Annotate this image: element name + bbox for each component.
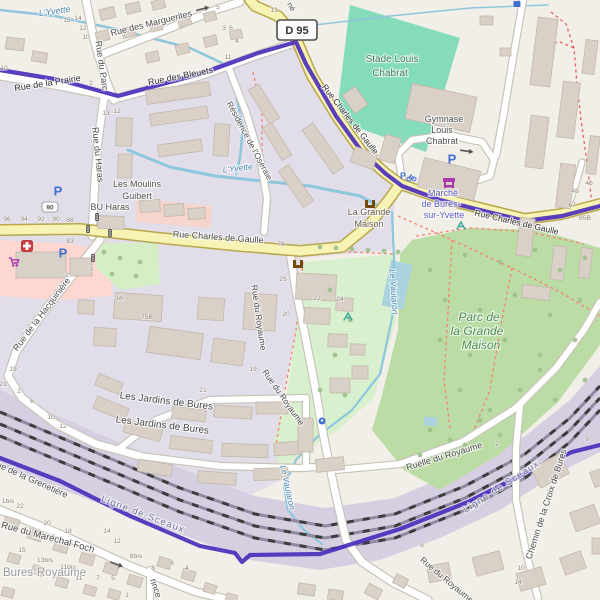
building [164, 203, 185, 216]
tree-symbol [468, 353, 473, 358]
parking-icon[interactable]: P [59, 246, 68, 261]
house-number: 3 [89, 266, 93, 273]
house-number: 3 [222, 25, 226, 32]
tree-symbol [533, 248, 538, 253]
building [352, 366, 368, 379]
building [327, 589, 343, 600]
traffic-signal-icon[interactable] [108, 229, 112, 237]
supermarket-icon [16, 264, 19, 267]
house-number: 22 [16, 503, 24, 510]
house-number: 12 [59, 423, 67, 430]
tree-symbol [488, 408, 493, 413]
tree-symbol [102, 250, 107, 255]
map-label: Guibert [122, 191, 152, 201]
osm-map-canvas[interactable]: PPPPD 9590L'YvetteRue des MargueritesRue… [0, 0, 600, 600]
building [592, 538, 600, 554]
house-number: 96 [3, 216, 11, 223]
tree-symbol [498, 260, 503, 265]
building [213, 124, 230, 157]
house-number: 14 [103, 528, 111, 535]
tree-symbol [518, 388, 523, 393]
tree-symbol [538, 353, 543, 358]
house-number: 15 [18, 547, 26, 554]
building [330, 378, 350, 393]
traffic-signal-icon [96, 216, 98, 218]
tree-symbol [428, 428, 433, 433]
road-ref-badge-label: D 95 [285, 25, 308, 37]
house-number: 75B [141, 314, 154, 321]
tree-symbol [478, 418, 483, 423]
city-gate-icon [296, 265, 300, 268]
tree-symbol [418, 453, 423, 458]
house-number: 7 [96, 575, 100, 582]
house-number: 15 [63, 17, 71, 24]
traffic-signal-icon [87, 228, 89, 230]
house-number: 13 [270, 7, 278, 14]
map-label: La Grande [348, 207, 391, 217]
tree-symbol [548, 313, 553, 318]
traffic-signal-icon[interactable] [86, 225, 90, 233]
house-number: 6 [170, 560, 174, 567]
building [297, 583, 315, 596]
traffic-signal-icon [92, 257, 94, 259]
building [304, 307, 331, 324]
house-number: 4 [185, 565, 189, 572]
building [222, 443, 268, 458]
house-number: 10 [0, 65, 8, 72]
parking-icon: P [448, 152, 457, 167]
house-number: 13 [102, 110, 110, 117]
traffic-signal-icon [92, 259, 94, 261]
house-number: 83 [66, 238, 74, 245]
house-number: 4 [235, 38, 239, 45]
house-number: 21 [199, 387, 207, 394]
house-number: 3A [115, 295, 124, 302]
house-number: 11 [224, 54, 231, 61]
traffic-signal-icon[interactable] [91, 254, 95, 262]
traffic-signal-icon[interactable] [95, 213, 99, 221]
tree-symbol [343, 393, 348, 398]
house-number: 5 [111, 575, 115, 582]
house-number: 22 [313, 295, 321, 302]
tree-symbol [458, 388, 463, 393]
house-number: 2 [17, 388, 21, 395]
city-gate-icon [293, 260, 296, 268]
map-label: la Grande [451, 324, 504, 338]
house-number: 1 [125, 592, 129, 599]
parking-icon: P [59, 246, 68, 261]
house-number: 10 [47, 414, 55, 421]
map-label: Maison [354, 219, 383, 229]
house-number: 12 [113, 108, 121, 115]
house-number: 14 [74, 15, 82, 22]
marketplace-icon [443, 178, 455, 182]
house-number: 12 [79, 25, 87, 32]
house-number: 2 [65, 272, 69, 279]
house-number: 8bis [130, 553, 143, 560]
building [328, 334, 347, 348]
building [5, 37, 24, 51]
building [315, 457, 344, 473]
house-number: 6 [229, 25, 233, 32]
house-number: 8 [420, 542, 424, 549]
building [188, 207, 206, 219]
parking-icon: P [54, 184, 63, 199]
map-label: Marché [428, 188, 458, 198]
tree-symbol [583, 378, 588, 383]
house-number: 25 [279, 276, 287, 283]
city-gate-icon [300, 260, 303, 268]
tree-symbol [498, 433, 503, 438]
traffic-signal-icon [87, 230, 89, 232]
blue-poi-icon[interactable] [514, 1, 521, 7]
tree-symbol [366, 248, 371, 253]
road-ref-badge-label: 90 [46, 204, 54, 211]
map-label: Les Moulins [113, 179, 162, 189]
house-number: 20 [282, 311, 290, 318]
tree-symbol [350, 247, 355, 252]
bicycle-parking-icon: P [400, 171, 406, 181]
house-number: 10 [517, 565, 525, 572]
house-number: 21 [0, 381, 7, 388]
house-number: 11bis [60, 564, 76, 571]
tree-symbol [110, 272, 115, 277]
building [118, 154, 133, 178]
pond [424, 417, 437, 426]
tree-symbol [318, 245, 323, 250]
house-number: 6 [30, 398, 34, 405]
house-number: 9 [585, 436, 589, 443]
house-number: 24 [336, 296, 344, 303]
map-label: de Bures- [421, 199, 460, 209]
house-number: 20 [43, 520, 51, 527]
house-number: 1bis [2, 498, 15, 505]
tree-symbol [318, 388, 323, 393]
drinking-water-icon [321, 419, 323, 421]
tree-symbol [396, 250, 401, 255]
building [198, 471, 237, 486]
clinic-icon [23, 245, 31, 248]
tree-symbol [134, 274, 139, 279]
traffic-signal-icon [92, 255, 94, 257]
tree-symbol [443, 298, 448, 303]
tree-symbol [138, 260, 143, 265]
traffic-signal-icon [109, 232, 111, 234]
map-label: sur-Yvette [424, 210, 465, 220]
building [197, 297, 224, 321]
tree-symbol [538, 368, 543, 373]
house-number: 48 [571, 188, 579, 195]
building [140, 199, 161, 212]
building [31, 51, 48, 63]
map-label: Chabrat [372, 68, 408, 79]
house-number: 12 [113, 538, 121, 545]
house-number: 94 [20, 216, 28, 223]
supermarket-icon [12, 264, 15, 267]
house-number: 78 [277, 241, 285, 248]
building [214, 405, 253, 419]
tree-symbol [382, 249, 387, 254]
house-number: 11 [75, 575, 82, 582]
house-number: 92 [37, 216, 45, 223]
map-viewport[interactable]: PPPPD 9590L'YvetteRue des MargueritesRue… [0, 0, 600, 600]
map-label: Parc de [458, 310, 500, 324]
building [480, 16, 493, 25]
map-label: Maison [462, 338, 501, 352]
building [210, 338, 245, 366]
house-number: 8 [151, 565, 155, 572]
building [500, 48, 511, 56]
tree-symbol [463, 253, 468, 258]
house-number: 46 [585, 180, 593, 187]
house-number: 19 [9, 366, 17, 373]
house-number: 18 [64, 528, 72, 535]
house-number: 5 [216, 4, 220, 11]
tree-symbol [503, 338, 508, 343]
tree-symbol [578, 298, 583, 303]
tree-symbol [328, 288, 333, 293]
map-label: Louis [431, 125, 453, 135]
tree-symbol [428, 268, 433, 273]
tree-symbol [583, 256, 588, 261]
house-number: 65B [579, 215, 592, 222]
tree-symbol [438, 338, 443, 343]
tree-symbol [558, 268, 563, 273]
map-label: Gymnase [425, 114, 464, 124]
parking-icon[interactable]: P [54, 184, 63, 199]
tree-symbol [513, 293, 518, 298]
traffic-signal-icon [109, 234, 111, 236]
map-label: BU Haras [90, 202, 130, 212]
building [350, 344, 365, 356]
tree-symbol [553, 398, 558, 403]
drinking-water-icon[interactable] [319, 418, 326, 425]
tree-symbol [333, 353, 338, 358]
tree-symbol [448, 438, 453, 443]
house-number: 2 [89, 80, 93, 87]
traffic-signal-icon [109, 230, 111, 232]
map-label: Chabrat [426, 136, 459, 146]
building [98, 216, 124, 230]
house-number: 67 [568, 202, 576, 209]
map-label: Stade Louis [366, 54, 419, 65]
building [116, 118, 133, 147]
house-number: 13bis [37, 557, 54, 564]
traffic-signal-icon [87, 226, 89, 228]
house-number: 10 [82, 34, 90, 41]
tree-symbol [334, 246, 339, 251]
building [78, 299, 95, 314]
house-number: 88 [66, 217, 74, 224]
traffic-signal-icon [96, 218, 98, 220]
clinic-icon[interactable] [22, 241, 33, 252]
tree-symbol [573, 338, 578, 343]
house-number: 19 [249, 366, 257, 373]
blue-poi-icon [514, 1, 521, 7]
traffic-signal-icon [96, 214, 98, 216]
building [93, 327, 116, 346]
tree-symbol [118, 256, 123, 261]
house-number: 90 [52, 216, 60, 223]
house-number: 2 [495, 441, 499, 448]
parking-icon[interactable]: P [448, 152, 457, 167]
house-number: 14 [514, 579, 522, 586]
